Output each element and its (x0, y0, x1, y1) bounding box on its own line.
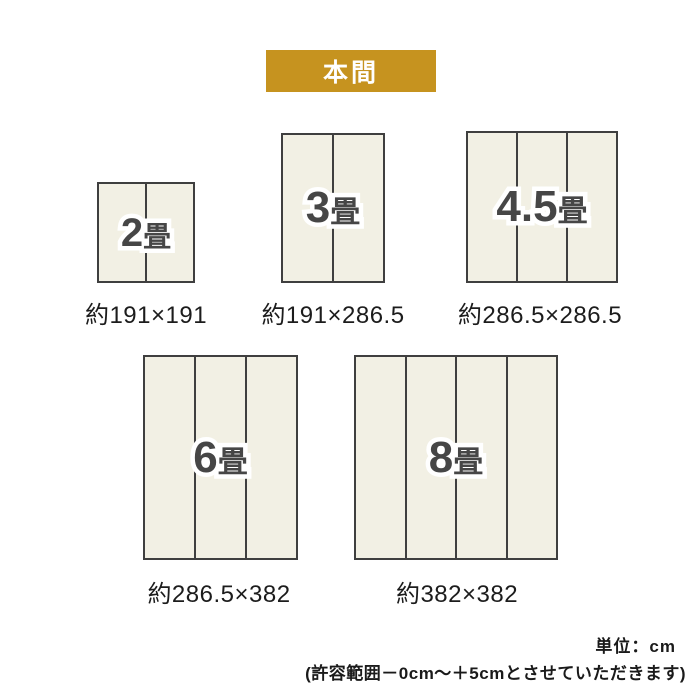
mat-dimensions-2tatami: 約191×191 (85, 295, 207, 330)
tolerance-note: (許容範囲－0cm～＋5cmとさせていただきます) (305, 659, 686, 684)
size-standard-badge: 本間 (266, 50, 436, 92)
mat-size-label-3tatami: 3畳 3畳 (283, 135, 383, 281)
size-label-text: 8畳 (429, 436, 483, 480)
size-label-text: 6畳 (193, 436, 247, 480)
mat-diagram-3tatami: 3畳 3畳 (281, 133, 385, 283)
mat-dimensions-4-5tatami: 約286.5×286.5 (458, 295, 622, 330)
unit-note: 単位：cm (595, 632, 676, 657)
mat-diagram-8tatami: 8畳 8畳 (354, 355, 558, 560)
size-label-text: 3畳 (306, 186, 360, 230)
mat-dimensions-8tatami: 約382×382 (396, 574, 518, 609)
mat-size-label-8tatami: 8畳 8畳 (356, 357, 556, 558)
size-label-text: 2畳 (121, 213, 171, 253)
mat-diagram-4-5tatami: 4.5畳 4.5畳 (466, 131, 618, 283)
mat-size-label-4-5tatami: 4.5畳 4.5畳 (468, 133, 616, 281)
size-label-text: 4.5畳 (496, 185, 587, 229)
tatami-size-chart: 本間 2畳 2畳 約191×191 3畳 3畳 約191×286.5 4.5畳 … (0, 0, 700, 700)
mat-dimensions-3tatami: 約191×286.5 (261, 295, 404, 330)
mat-size-label-6tatami: 6畳 6畳 (145, 357, 296, 558)
mat-size-label-2tatami: 2畳 2畳 (99, 184, 193, 281)
mat-dimensions-6tatami: 約286.5×382 (147, 574, 290, 609)
mat-diagram-2tatami: 2畳 2畳 (97, 182, 195, 283)
mat-diagram-6tatami: 6畳 6畳 (143, 355, 298, 560)
